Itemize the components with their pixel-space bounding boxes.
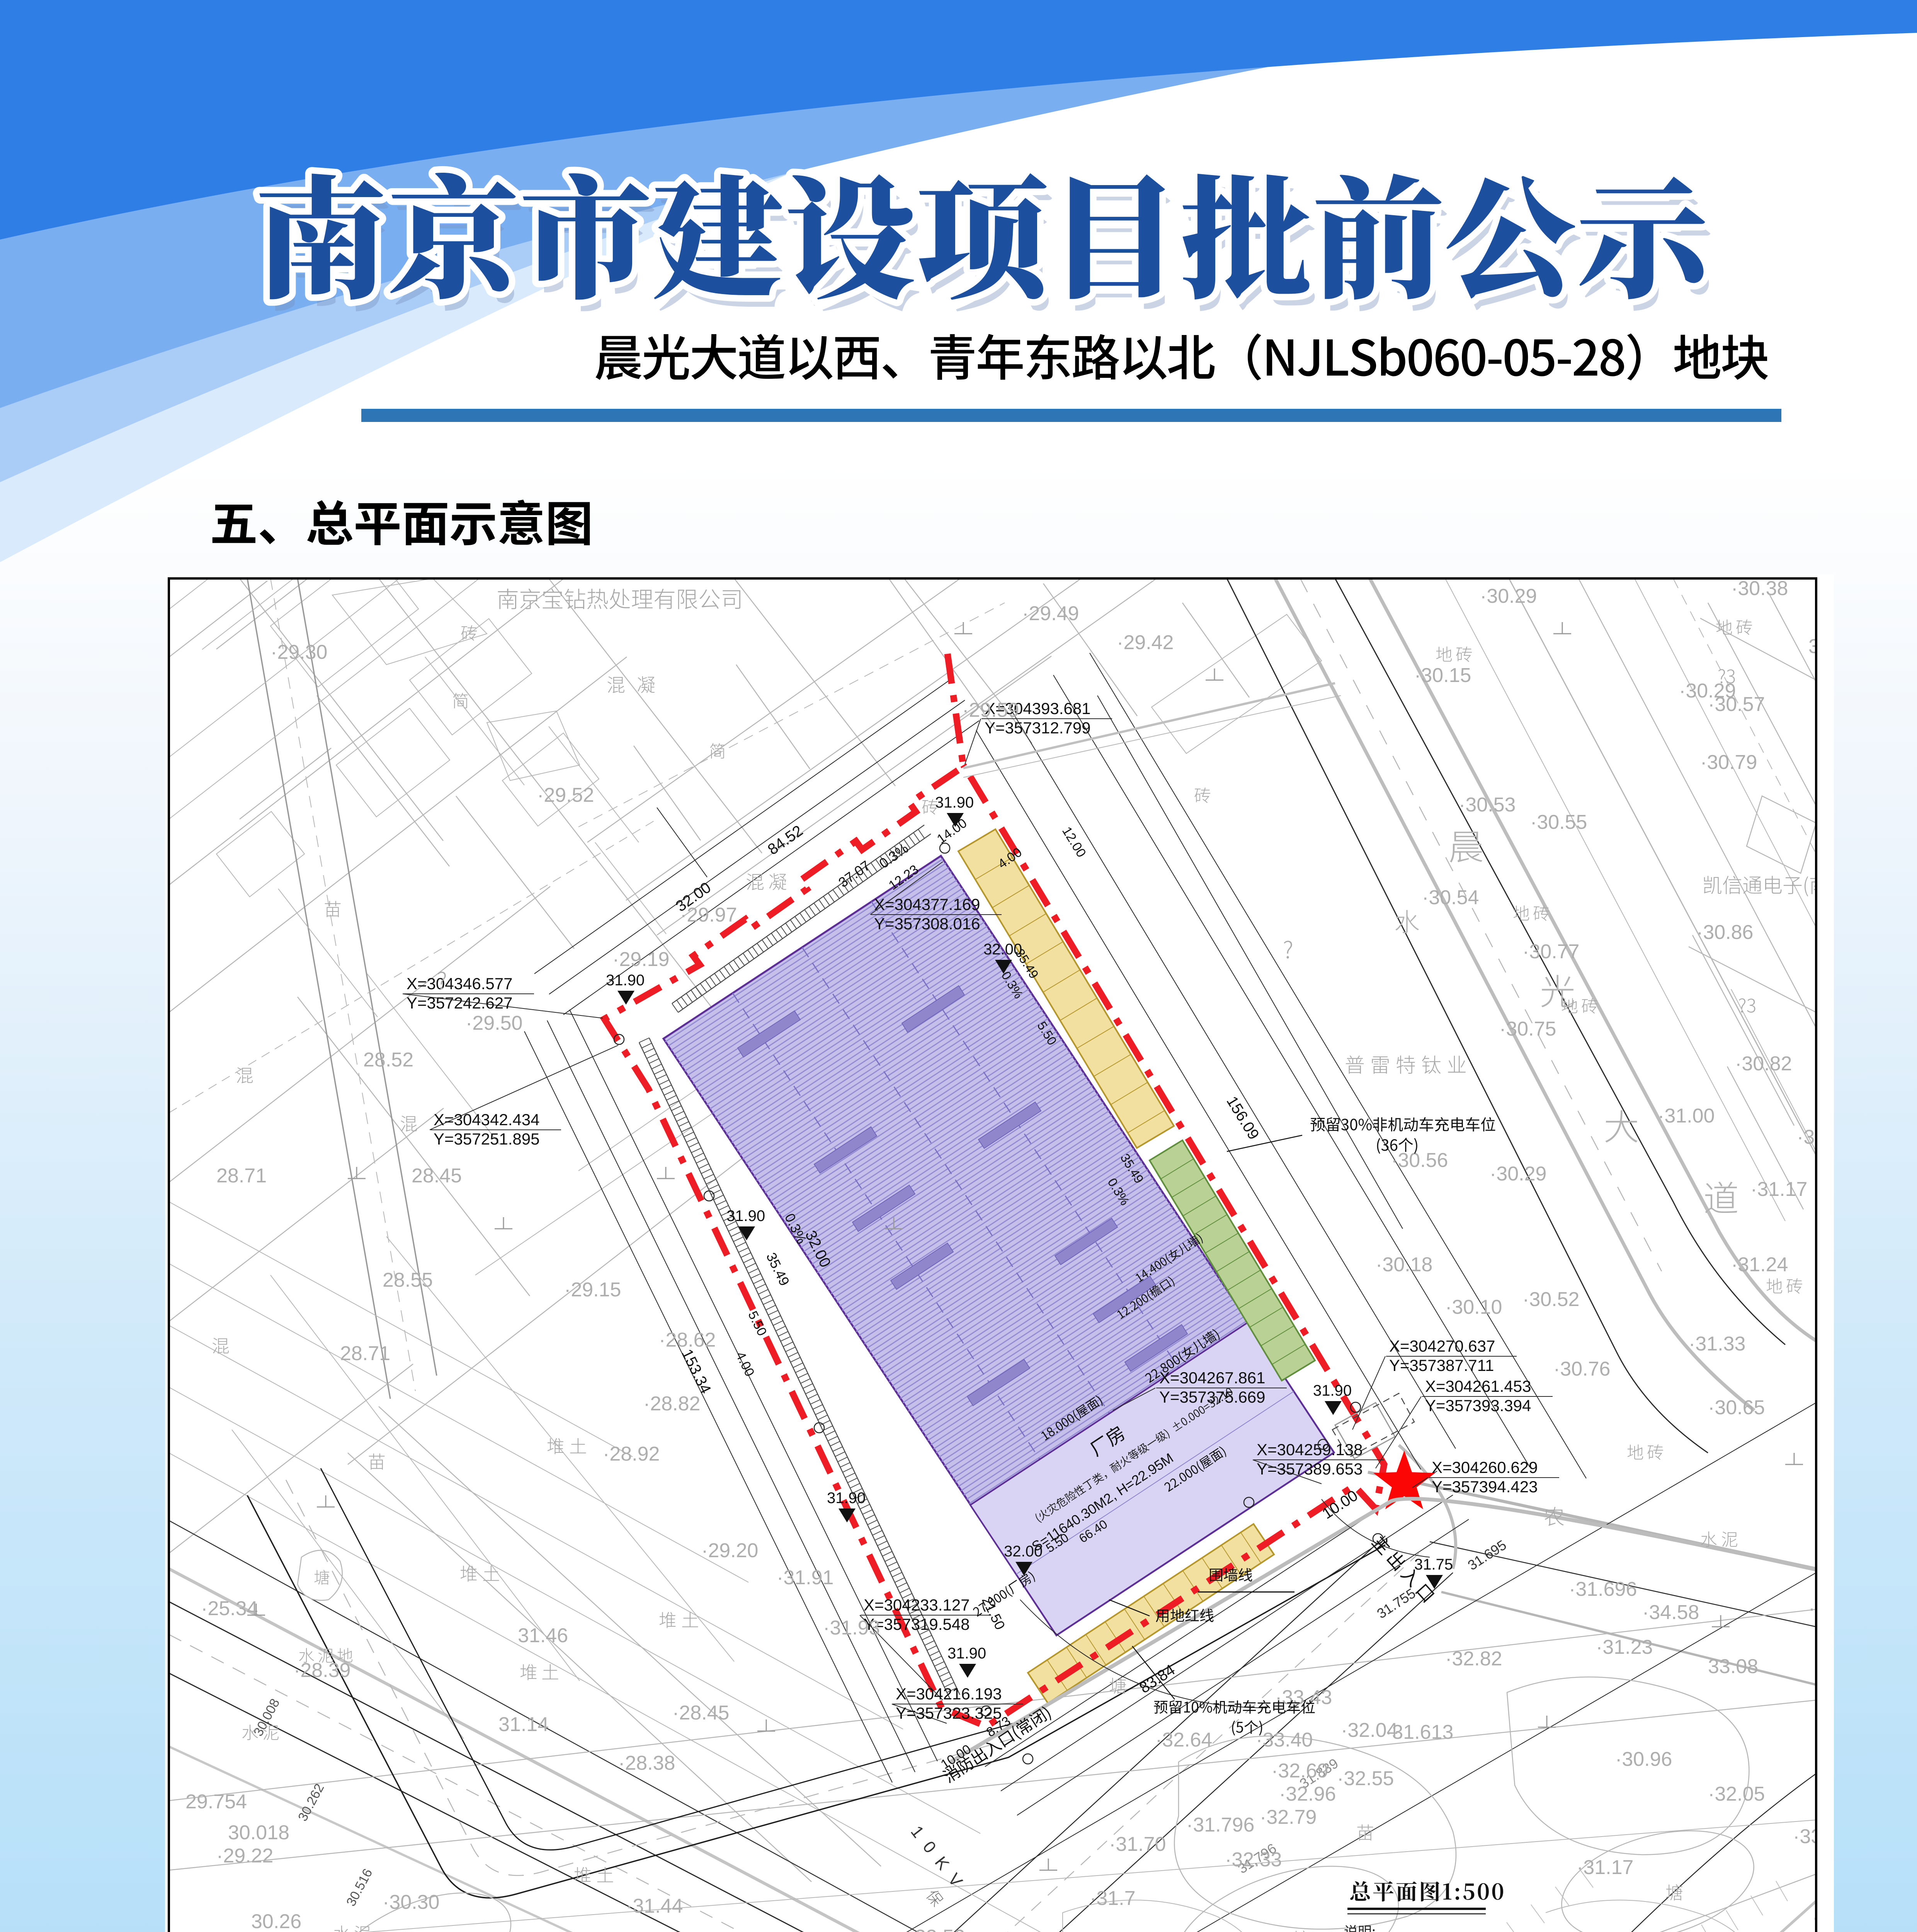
svg-text:X=304346.577: X=304346.577	[407, 975, 512, 993]
svg-text:·31.23: ·31.23	[1596, 1636, 1653, 1658]
svg-text:·29.22: ·29.22	[216, 1845, 273, 1867]
svg-text:·31.696: ·31.696	[1569, 1578, 1637, 1600]
svg-text:·28.45: ·28.45	[672, 1702, 729, 1724]
svg-text:28.52: 28.52	[363, 1049, 413, 1071]
svg-text:·31.00: ·31.00	[1658, 1105, 1715, 1127]
svg-text:·30.75: ·30.75	[1499, 1018, 1556, 1040]
svg-text:·31.24: ·31.24	[1731, 1253, 1788, 1276]
svg-text:X=304259.138: X=304259.138	[1257, 1440, 1362, 1459]
svg-text:·32.05: ·32.05	[1708, 1783, 1765, 1805]
svg-text:·29.49: ·29.49	[1022, 602, 1079, 625]
svg-text:·31.17: ·31.17	[1577, 1856, 1633, 1879]
svg-text:Y=357393.394: Y=357393.394	[1425, 1396, 1531, 1415]
svg-text:·30.38: ·30.38	[1731, 577, 1788, 600]
svg-text:·33.40: ·33.40	[1256, 1729, 1313, 1751]
svg-text:31.46: 31.46	[518, 1624, 568, 1647]
svg-text:·30.29: ·30.29	[1480, 585, 1537, 607]
svg-text:·28.82: ·28.82	[643, 1393, 700, 1415]
svg-text:31.90: 31.90	[726, 1207, 765, 1225]
svg-text:33.08: 33.08	[1708, 1655, 1758, 1678]
svg-text:·29.30: ·29.30	[270, 641, 327, 663]
svg-text:28.45: 28.45	[412, 1165, 462, 1187]
svg-text:31.75: 31.75	[1414, 1556, 1453, 1573]
svg-text:·30.57: ·30.57	[1708, 693, 1765, 716]
svg-text:·32.55: ·32.55	[1337, 1767, 1394, 1790]
svg-text:30.26: 30.26	[251, 1910, 301, 1932]
svg-text:·25.34: ·25.34	[201, 1597, 258, 1620]
svg-text:·32.69: ·32.69	[1271, 1760, 1328, 1782]
svg-text:Y=357323.325: Y=357323.325	[896, 1704, 1002, 1722]
svg-text:·30.18: ·30.18	[1376, 1253, 1432, 1276]
svg-text:·30.54: ·30.54	[1422, 886, 1479, 909]
svg-text:·33.52: ·33.52	[908, 1926, 965, 1932]
svg-text:Y=357375.669: Y=357375.669	[1159, 1388, 1265, 1406]
svg-text:·30.52: ·30.52	[1522, 1288, 1579, 1311]
svg-text:·29.42: ·29.42	[1117, 631, 1174, 654]
svg-text:28.71: 28.71	[340, 1342, 390, 1365]
svg-text:·30.77: ·30.77	[1522, 940, 1579, 963]
svg-text:·31.91: ·31.91	[777, 1566, 833, 1589]
svg-text:·30.86: ·30.86	[1696, 921, 1753, 944]
svg-text:31.90: 31.90	[606, 972, 645, 989]
svg-text:28.71: 28.71	[216, 1165, 267, 1187]
svg-text:·30.82: ·30.82	[1735, 1053, 1792, 1075]
svg-text:·30.76: ·30.76	[1553, 1358, 1610, 1380]
svg-text:31.90: 31.90	[1313, 1382, 1352, 1399]
svg-text:31.90: 31.90	[947, 1645, 986, 1662]
svg-text:Y=357394.423: Y=357394.423	[1432, 1478, 1538, 1496]
svg-text:X=304260.629: X=304260.629	[1432, 1458, 1538, 1476]
svg-text:X=304261.453: X=304261.453	[1425, 1377, 1531, 1395]
svg-text:X=304233.127: X=304233.127	[864, 1596, 970, 1614]
svg-text:X=304267.861: X=304267.861	[1159, 1369, 1265, 1387]
svg-text:·32.96: ·32.96	[1279, 1783, 1336, 1805]
svg-text:·34.58: ·34.58	[1642, 1601, 1699, 1624]
svg-text:31.14: 31.14	[498, 1713, 549, 1736]
svg-text:X=304216.193: X=304216.193	[896, 1685, 1002, 1703]
svg-text:·29.19: ·29.19	[612, 948, 669, 971]
svg-text:·32.64: ·32.64	[1155, 1729, 1212, 1751]
svg-text:·30.29: ·30.29	[1490, 1163, 1546, 1185]
svg-text:·28.39: ·28.39	[294, 1659, 350, 1682]
svg-text:·29.15: ·29.15	[564, 1279, 621, 1301]
svg-text:·31.93: ·31.93	[823, 1617, 880, 1639]
svg-text:·29.52: ·29.52	[537, 784, 594, 806]
svg-text:·32.33: ·32.33	[1225, 1849, 1282, 1871]
svg-text:Y=357308.016: Y=357308.016	[874, 915, 980, 933]
svg-text:Y=357389.653: Y=357389.653	[1257, 1460, 1362, 1478]
svg-text:·30.65: ·30.65	[1708, 1396, 1765, 1419]
svg-text:·31.613: ·31.613	[1385, 1721, 1453, 1743]
svg-text:·31.17: ·31.17	[1750, 1178, 1807, 1201]
svg-text:30.018: 30.018	[228, 1821, 289, 1844]
svg-text:X=304342.434: X=304342.434	[434, 1111, 539, 1129]
svg-text:·30.56: ·30.56	[1391, 1149, 1448, 1172]
svg-text:·31.33: ·31.33	[1689, 1333, 1745, 1355]
svg-text:·28.38: ·28.38	[618, 1752, 675, 1774]
svg-text:·32.79: ·32.79	[1260, 1806, 1317, 1828]
svg-text:31.90: 31.90	[935, 794, 974, 811]
svg-text:·29.20: ·29.20	[701, 1539, 758, 1562]
svg-text:Y=357312.799: Y=357312.799	[985, 719, 1090, 737]
svg-text:·31.70: ·31.70	[1109, 1833, 1166, 1855]
svg-text:·28.62: ·28.62	[659, 1329, 716, 1351]
svg-text:X=304270.637: X=304270.637	[1389, 1337, 1495, 1355]
svg-text:·30.30: ·30.30	[383, 1891, 439, 1913]
svg-text:·29.59: ·29.59	[962, 699, 1019, 721]
svg-text:·30.53: ·30.53	[1459, 794, 1516, 816]
svg-text:Y=357387.711: Y=357387.711	[1389, 1356, 1494, 1374]
svg-text:·30.10: ·30.10	[1445, 1296, 1502, 1318]
svg-text:·28.92: ·28.92	[603, 1443, 660, 1465]
svg-text:·31.44: ·31.44	[626, 1895, 683, 1917]
svg-text:·32.82: ·32.82	[1445, 1648, 1502, 1670]
svg-text:·29.97: ·29.97	[680, 904, 737, 926]
svg-text:·31.7: ·31.7	[1090, 1887, 1136, 1910]
svg-text:Y=357251.895: Y=357251.895	[434, 1130, 539, 1148]
svg-text:·30.96: ·30.96	[1615, 1748, 1672, 1770]
svg-text:·31.796: ·31.796	[1186, 1814, 1254, 1836]
svg-text:31.90: 31.90	[827, 1490, 866, 1507]
svg-text:·30.79: ·30.79	[1700, 751, 1757, 774]
svg-text:X=304377.169: X=304377.169	[874, 895, 980, 913]
svg-text:·29.50: ·29.50	[466, 1012, 522, 1034]
svg-text:·30.15: ·30.15	[1414, 664, 1471, 687]
svg-text:28.55: 28.55	[383, 1269, 433, 1291]
svg-text:32.00: 32.00	[1004, 1543, 1043, 1560]
svg-text:Y=357242.627: Y=357242.627	[407, 994, 512, 1012]
svg-text:29.754: 29.754	[185, 1791, 247, 1813]
svg-text:·30.55: ·30.55	[1530, 811, 1587, 833]
